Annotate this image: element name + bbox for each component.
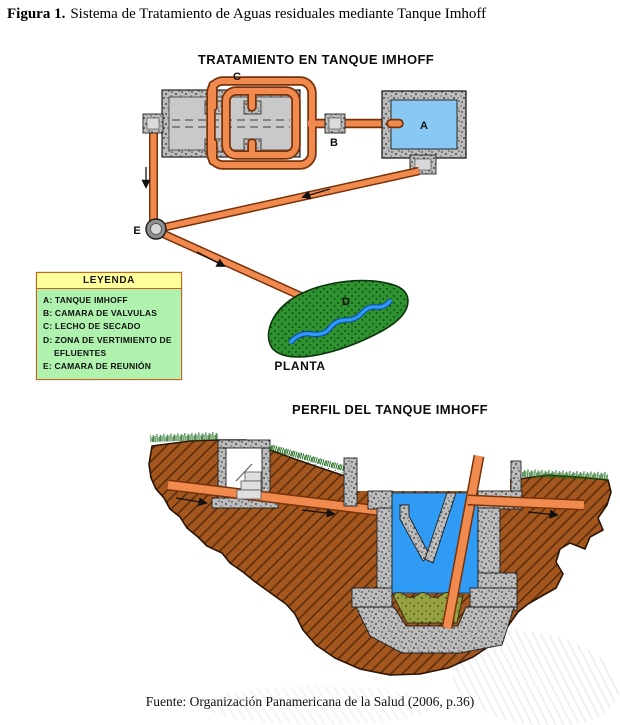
drying-bed-drain (143, 114, 163, 225)
outlet-pipe (468, 500, 584, 505)
tank-left-wall (377, 508, 392, 592)
profile-title: PERFIL DEL TANQUE IMHOFF (292, 402, 488, 417)
label-e: E (133, 225, 140, 237)
legend-item-b: B: CAMARA DE VALVULAS (43, 307, 178, 320)
plan-caption: PLANTA (274, 359, 325, 373)
pipe-tank-to-junction (161, 171, 419, 228)
excavation-pit (354, 442, 510, 491)
legend-item-c: C: LECHO DE SECADO (43, 320, 178, 333)
imhoff-tank-profile (352, 491, 522, 653)
legend-body: A: TANQUE IMHOFF B: CAMARA DE VALVULAS C… (37, 289, 181, 379)
figure-label: Figura 1. (7, 6, 65, 22)
label-d: D (342, 296, 350, 308)
junction-chamber (146, 219, 166, 239)
profile-view-diagram: PERFIL DEL TANQUE IMHOFF (0, 395, 620, 695)
label-b: B (330, 137, 338, 149)
legend-item-d: D: ZONA DE VERTIMIENTO DE EFLUENTES (43, 334, 178, 360)
left-retaining-wall (344, 458, 357, 506)
plan-title: TRATAMIENTO EN TANQUE IMHOFF (198, 52, 434, 67)
label-c: C (233, 71, 241, 83)
right-retaining-wall (511, 461, 521, 492)
legend-item-a: A: TANQUE IMHOFF (43, 294, 178, 307)
imhoff-tank-plan (382, 91, 466, 174)
figure-caption-text: Sistema de Tratamiento de Aguas residual… (70, 6, 486, 22)
document-page: Figura 1.Sistema de Tratamiento de Aguas… (0, 0, 620, 725)
source-citation: Fuente: Organización Panamericana de la … (0, 694, 620, 710)
legend-box: LEYENDA A: TANQUE IMHOFF B: CAMARA DE VA… (36, 272, 182, 380)
valve-chamber (325, 114, 345, 133)
legend-title: LEYENDA (37, 273, 181, 289)
figure-caption: Figura 1.Sistema de Tratamiento de Aguas… (7, 6, 613, 23)
legend-item-e: E: CAMARA DE REUNIÓN (43, 360, 178, 373)
label-a: A (420, 120, 428, 132)
